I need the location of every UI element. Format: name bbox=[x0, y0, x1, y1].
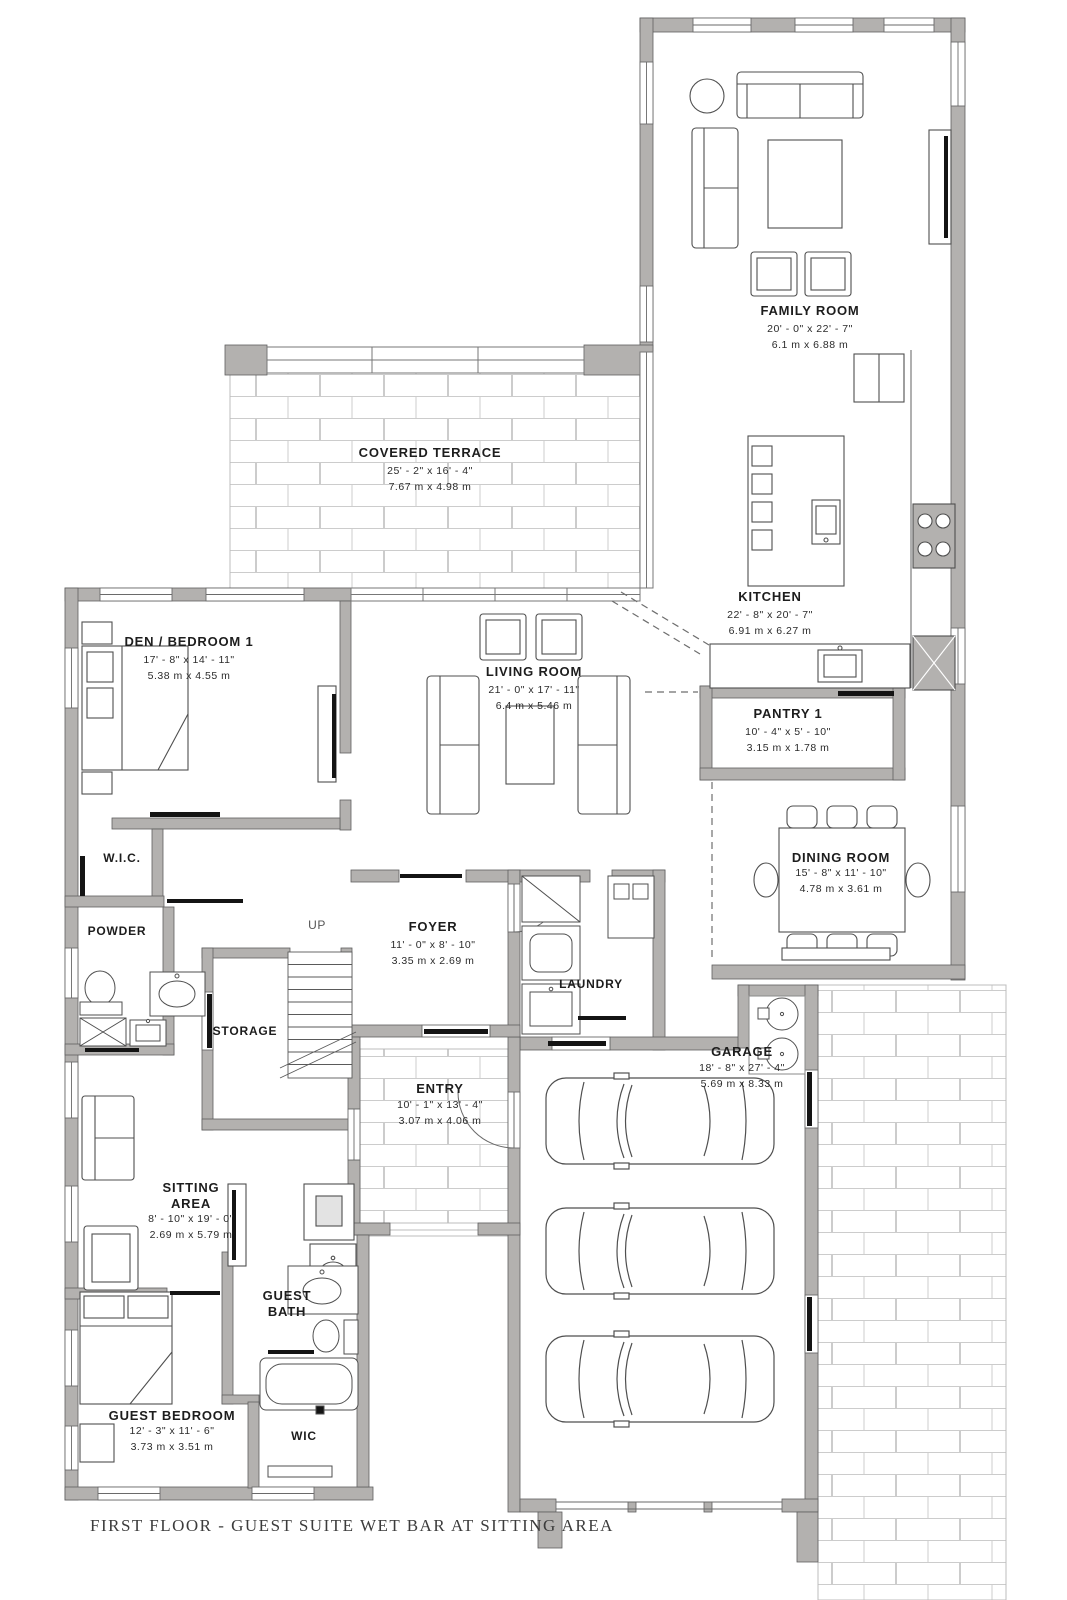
room-label-sitting-area: SITTING AREA 8' - 10" x 19' - 0" 2.69 m … bbox=[141, 1180, 241, 1241]
room-label-family-room: FAMILY ROOM 20' - 0" x 22' - 7" 6.1 m x … bbox=[760, 303, 859, 351]
room-label-living-room: LIVING ROOM 21' - 0" x 17' - 11" 6.4 m x… bbox=[486, 664, 582, 712]
floor-plan: FAMILY ROOM 20' - 0" x 22' - 7" 6.1 m x … bbox=[0, 0, 1067, 1600]
room-label-guest-bedroom: GUEST BEDROOM 12' - 3" x 11' - 6" 3.73 m… bbox=[109, 1408, 236, 1453]
room-label-guest-bath: GUEST BATH bbox=[248, 1288, 326, 1320]
room-label-garage: GARAGE 18' - 8" x 27' - 4" 5.69 m x 8.33… bbox=[699, 1044, 785, 1090]
room-label-powder: POWDER bbox=[88, 923, 147, 939]
room-label-guest-wic: WIC bbox=[291, 1428, 317, 1444]
room-label-storage: STORAGE bbox=[213, 1023, 278, 1039]
room-label-den-bedroom1: DEN / BEDROOM 1 17' - 8" x 14' - 11" 5.3… bbox=[124, 634, 253, 682]
room-label-pantry1: PANTRY 1 10' - 4" x 5' - 10" 3.15 m x 1.… bbox=[745, 706, 831, 754]
powder-fixtures bbox=[80, 971, 205, 1046]
laundry-fixtures bbox=[522, 876, 654, 1034]
room-label-dining-room: DINING ROOM 15' - 8" x 11' - 10" 4.78 m … bbox=[792, 850, 890, 895]
sheet-title: FIRST FLOOR - GUEST SUITE WET BAR AT SIT… bbox=[90, 1516, 614, 1536]
room-label-covered-terrace: COVERED TERRACE 25' - 2" x 16' - 4" 7.67… bbox=[359, 445, 502, 493]
room-label-foyer: FOYER 11' - 0" x 8' - 10" 3.35 m x 2.69 … bbox=[391, 919, 476, 967]
living-room-furniture bbox=[427, 614, 630, 814]
family-room-furniture bbox=[690, 72, 951, 296]
room-label-laundry: LAUNDRY bbox=[559, 976, 623, 992]
room-label-wic: W.I.C. bbox=[103, 850, 140, 866]
entry-paving bbox=[360, 1049, 508, 1236]
stairs-up-label: UP bbox=[308, 918, 326, 932]
staircase bbox=[280, 952, 356, 1078]
wic-closet-rod bbox=[80, 856, 85, 896]
kitchen-furniture bbox=[710, 350, 955, 690]
garage-door-sill bbox=[556, 1502, 782, 1509]
car-icon bbox=[546, 1203, 774, 1299]
car-icon bbox=[546, 1331, 774, 1427]
room-label-entry: ENTRY 10' - 1" x 13' - 4" 3.07 m x 4.06 … bbox=[397, 1081, 483, 1127]
floor-plan-drawing bbox=[0, 0, 1067, 1600]
driveway-paving bbox=[818, 985, 1006, 1600]
room-label-kitchen: KITCHEN 22' - 8" x 20' - 7" 6.91 m x 6.2… bbox=[727, 589, 813, 637]
